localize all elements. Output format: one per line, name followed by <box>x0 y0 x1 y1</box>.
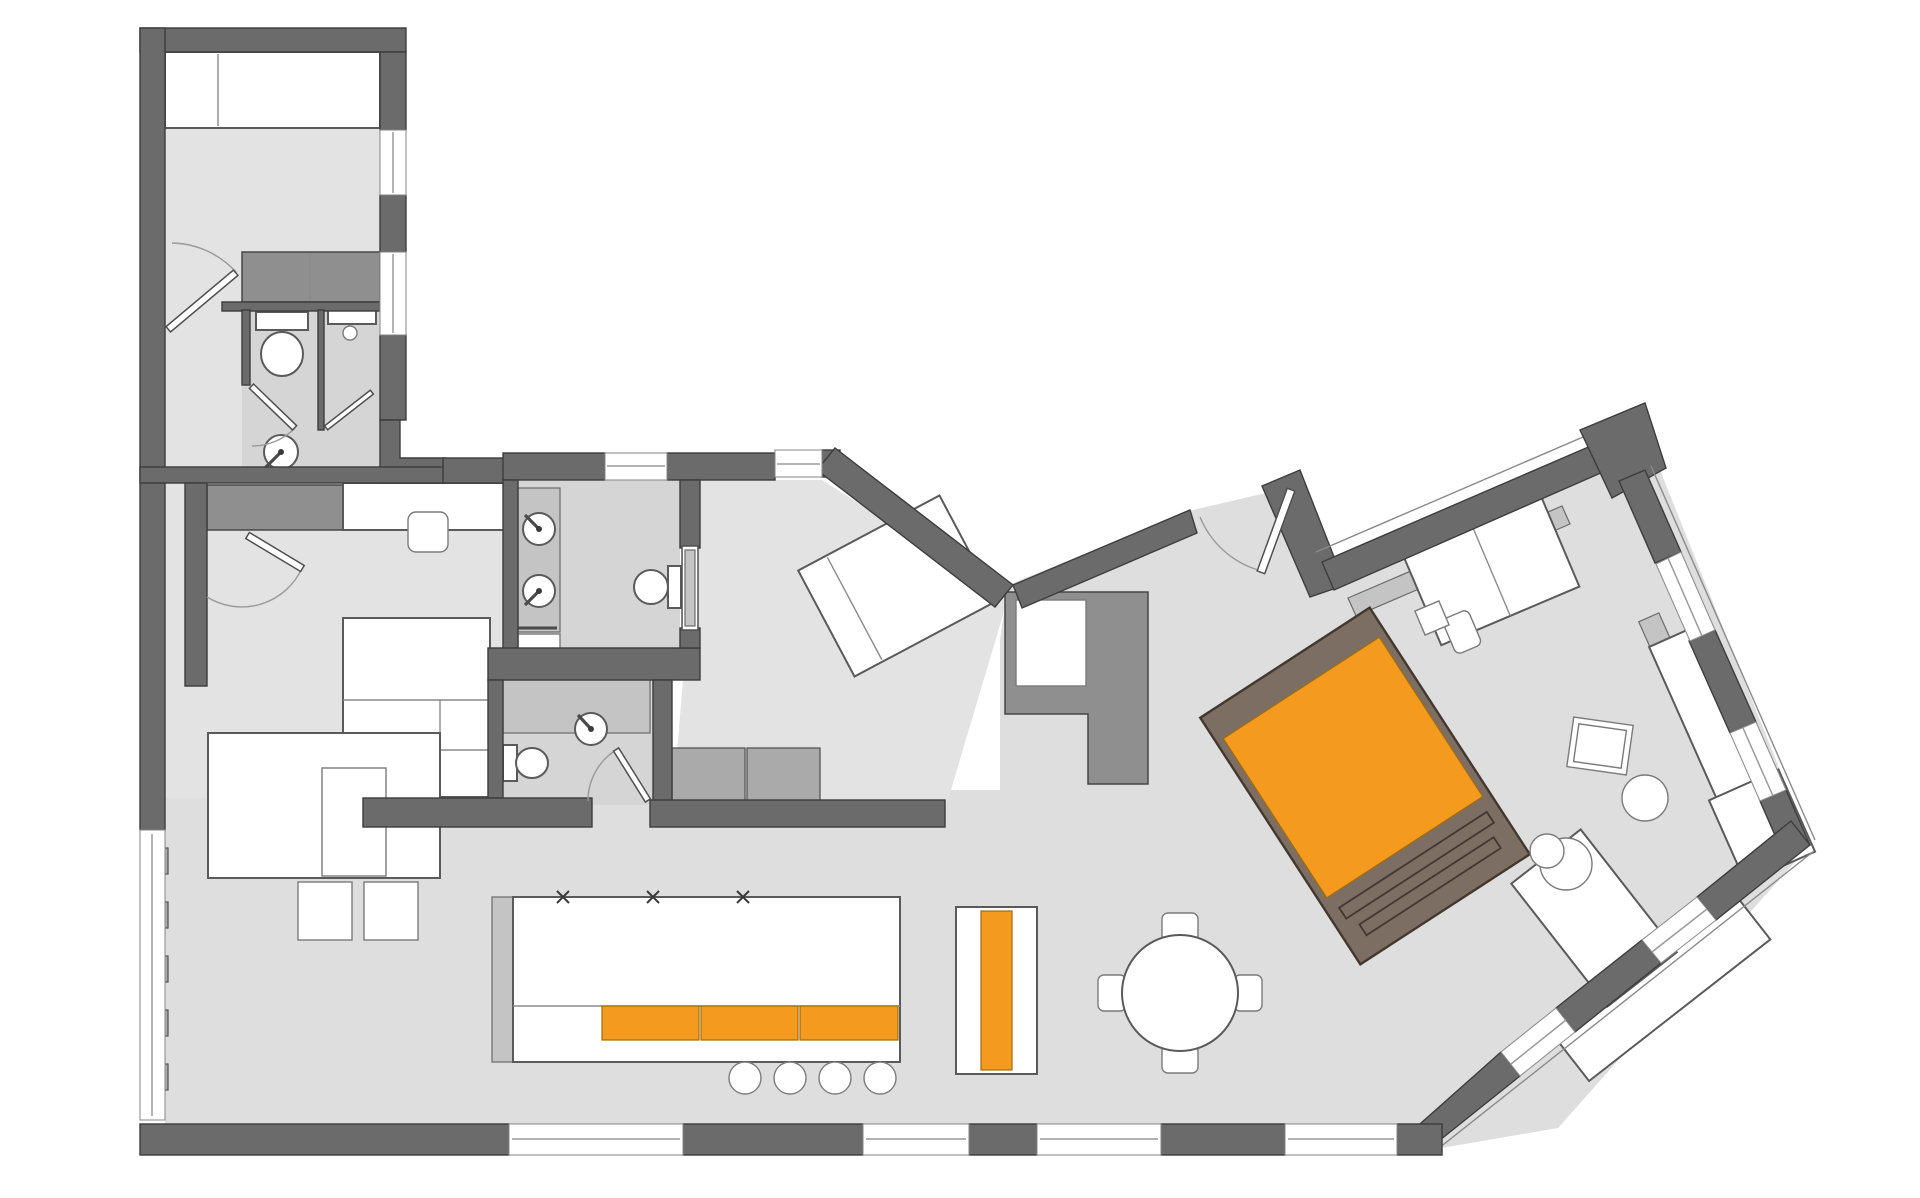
wall-pocket-bottom <box>680 628 700 648</box>
bed1 <box>165 52 380 128</box>
pouf-small <box>1530 834 1564 868</box>
wall-room2-right <box>488 680 503 798</box>
island-drawer-3 <box>800 1006 898 1040</box>
toilet2-bowl <box>634 570 668 604</box>
bedroom3-closet-a <box>672 748 745 808</box>
exterior-notch <box>406 340 508 458</box>
wall-bath1-left <box>242 310 250 385</box>
wall-pocket-top <box>680 480 700 548</box>
bar-stool-3 <box>819 1062 851 1094</box>
toilet3-tank <box>503 745 517 781</box>
wall-room2-top <box>140 467 445 483</box>
bathroom2-vanity <box>518 488 560 632</box>
wall-bottom-e <box>1397 1124 1442 1155</box>
bar-stool-2 <box>774 1062 806 1094</box>
bedroom2-chair <box>408 512 448 552</box>
living-wardrobe-table <box>1016 600 1086 686</box>
wall-bath1-divider <box>318 310 324 430</box>
wall-wing-right-a <box>380 52 406 130</box>
left-sofa-table-2 <box>364 882 418 940</box>
island-drawer-2 <box>701 1006 798 1040</box>
wall-left-outer <box>140 28 165 830</box>
floor-plan-canvas <box>0 0 1920 1198</box>
console-orange-runner <box>981 911 1012 1070</box>
toilet2-tank <box>668 566 681 608</box>
bedroom3-closet-b <box>747 748 820 808</box>
wall-wing-right-b <box>380 195 406 252</box>
toilet1-tank <box>256 312 308 330</box>
bar-stool-4 <box>864 1062 896 1094</box>
washbasin2a-drain <box>536 526 542 532</box>
dining-table <box>1122 935 1238 1051</box>
wall-bottom-a <box>140 1124 509 1155</box>
wall-bath2-top-a <box>503 453 605 480</box>
left-sofa-table-1 <box>298 882 352 940</box>
wall-bath2-bath3-divider <box>488 648 700 680</box>
orange-console <box>956 907 1037 1074</box>
wall-bath3-right <box>653 680 672 805</box>
toilet3-bowl <box>516 748 548 778</box>
wall-bottom-d <box>1161 1124 1285 1155</box>
island-bench-end <box>492 897 513 1062</box>
bar-stool-1 <box>729 1062 761 1094</box>
round-side-table <box>1622 775 1668 821</box>
toilet1-bowl <box>261 332 303 376</box>
shower1-shelf <box>328 310 376 324</box>
wall-bottom-row-b <box>650 800 945 827</box>
sofa-square-table-inner <box>1574 724 1627 768</box>
washbasin1-drain <box>278 449 284 455</box>
wall-bottom-c <box>969 1124 1037 1155</box>
shower1-head <box>343 326 357 340</box>
washbasin3-drain <box>588 726 594 732</box>
wall-bath2-top-b <box>667 453 775 480</box>
bedroom2-wardrobe <box>207 485 343 530</box>
floor-plan <box>0 0 1920 1198</box>
wall-bath2-left <box>503 480 518 660</box>
bath2-pocket-door-leaf <box>685 550 695 626</box>
island-drawer-1 <box>602 1006 699 1040</box>
wall-top-left-wing <box>140 28 406 52</box>
wall-mid-top <box>443 458 508 483</box>
wall-bottom-row-a <box>363 798 592 827</box>
wall-wing-right-c <box>380 335 406 420</box>
bedroom1-cabinet <box>242 252 380 302</box>
wall-room2-stub <box>185 483 207 686</box>
wall-bottom-b <box>683 1124 863 1155</box>
washbasin2b-drain <box>536 588 542 594</box>
